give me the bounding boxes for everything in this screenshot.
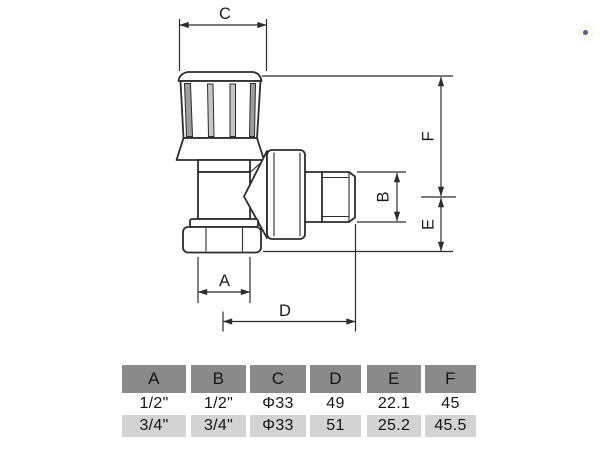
- col-header-b: B: [191, 365, 246, 393]
- compression-flange: [190, 219, 258, 227]
- table-cell: 22.1: [367, 394, 421, 414]
- dimension-a: A: [198, 257, 250, 303]
- dim-label-a: A: [219, 272, 230, 290]
- dim-label-b: B: [375, 191, 393, 202]
- body-column: [198, 172, 250, 219]
- table-cell: Φ33: [250, 394, 306, 414]
- grip-groove: [185, 84, 193, 137]
- grip-groove: [208, 84, 215, 137]
- table-cell: 3/4": [191, 415, 246, 437]
- table-cell: 45: [425, 394, 476, 414]
- dim-label-f: F: [420, 131, 438, 141]
- dimension-b: B: [357, 172, 406, 222]
- dimension-c: C: [180, 5, 267, 71]
- handwheel-cap: [179, 72, 262, 81]
- grip-groove: [230, 84, 236, 137]
- table-cell: 3/4": [122, 415, 186, 437]
- watermark-artifact: [583, 30, 588, 35]
- bonnet-neck: [198, 160, 250, 172]
- union-nut: [267, 150, 305, 239]
- compression-nut: [183, 227, 261, 253]
- col-header-d: D: [310, 365, 361, 393]
- col-header-a: A: [122, 365, 186, 393]
- table-cell: 51: [310, 415, 361, 437]
- table-cell: Φ33: [250, 415, 306, 437]
- dim-label-c: C: [219, 5, 231, 23]
- valve-technical-drawing: C F E B A: [0, 0, 600, 362]
- col-header-f: F: [425, 365, 476, 393]
- table-cell: 49: [310, 394, 361, 414]
- col-header-c: C: [250, 365, 306, 393]
- col-header-e: E: [367, 365, 421, 393]
- handwheel-skirt: [177, 138, 265, 160]
- grip-groove: [250, 84, 256, 137]
- union-nut-outline: [267, 150, 305, 239]
- male-thread-end: [322, 172, 355, 222]
- dim-label-d: D: [279, 302, 291, 320]
- table-cell: 45.5: [425, 415, 476, 437]
- handwheel: [177, 72, 265, 160]
- table-cell: 1/2": [191, 394, 246, 414]
- outlet-pipe: [305, 172, 355, 222]
- bottom-connection: [183, 219, 261, 253]
- table-cell: 25.2: [367, 415, 421, 437]
- dim-label-e: E: [420, 219, 438, 230]
- table-cell: 1/2": [122, 394, 186, 414]
- valve-spec-sheet: C F E B A: [0, 0, 600, 450]
